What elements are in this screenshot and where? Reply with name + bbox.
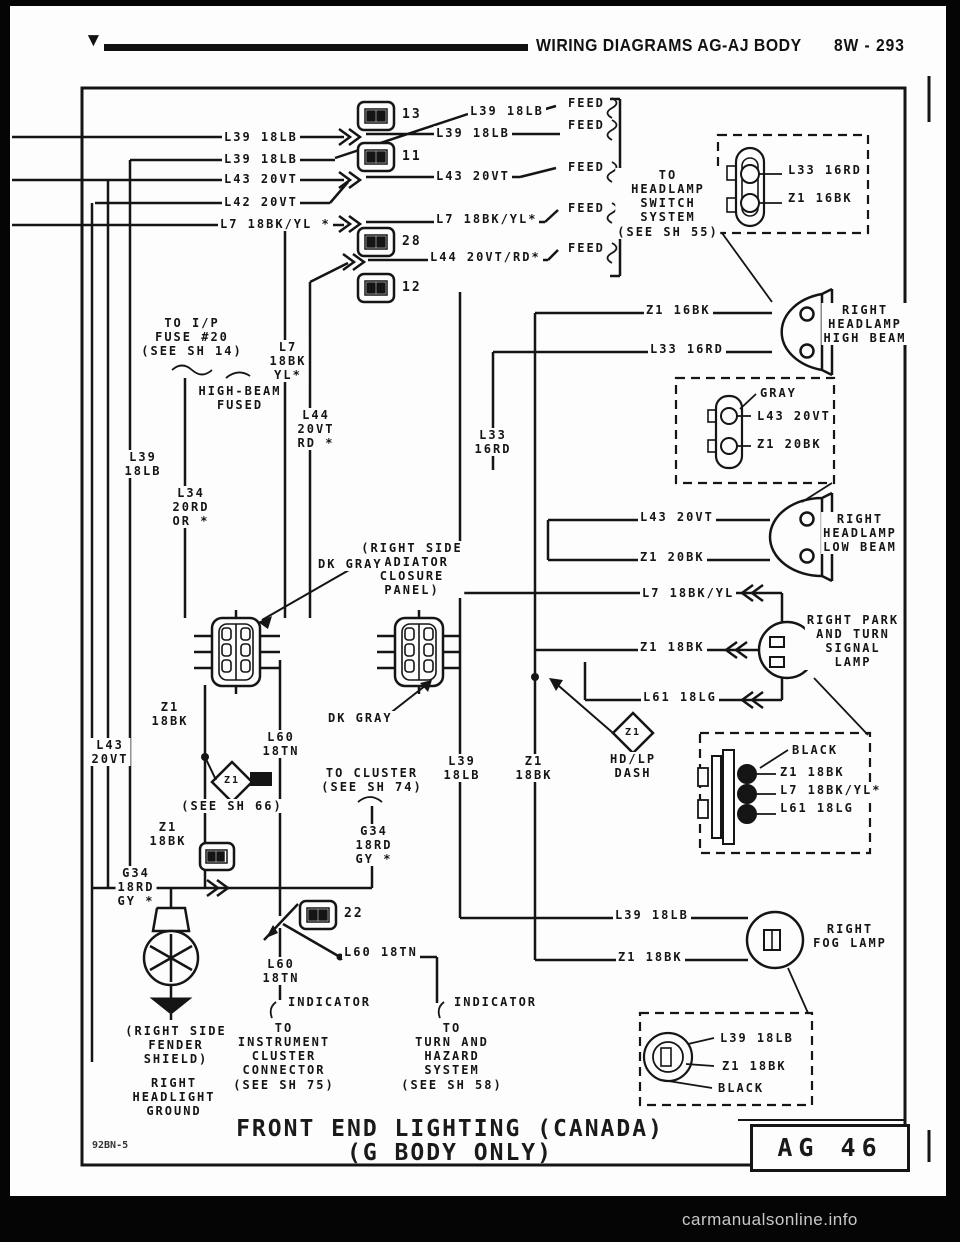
note-instrument-cluster: TO INSTRUMENT CLUSTER CONNECTOR (SEE SH … [231, 1021, 336, 1092]
note-ip-fuse: TO I/P FUSE #20 (SEE SH 14) [139, 316, 244, 358]
indicator-label-b: INDICATOR [452, 995, 539, 1009]
connector-color-gray: GRAY [758, 386, 799, 400]
wire-stack-l39-mid: L39 18LB [442, 754, 483, 782]
wire-label-l43-inset: L43 20VT [755, 409, 833, 423]
connector-color-black-b: BLACK [716, 1081, 766, 1095]
wire-stack-z1-left-b: Z1 18BK [148, 820, 189, 848]
wire-label-z1-20bk: Z1 20BK [638, 550, 707, 564]
wire-label-l7-b2: L7 18BK/YL [640, 586, 736, 600]
note-turn-hazard: TO TURN AND HAZARD SYSTEM (SEE SH 58) [399, 1021, 504, 1092]
wire-label-l33-inset: L33 16RD [786, 163, 864, 177]
page-reference-box: AG 46 [750, 1124, 910, 1172]
scanned-page: ▼ WIRING DIAGRAMS AG-AJ BODY 8W - 293 [0, 0, 960, 1242]
page-ref-box-line [738, 1119, 905, 1121]
wire-label-l60: L60 18TN [342, 945, 420, 959]
wire-label-l39-fog: L39 18LB [613, 908, 691, 922]
wire-stack-l39-left: L39 18LB [123, 450, 164, 478]
component-label-low-beam: RIGHT HEADLAMP LOW BEAM [821, 512, 899, 554]
note-cluster-sh74: TO CLUSTER (SEE SH 74) [319, 766, 424, 794]
connector-number-11: 11 [400, 149, 424, 164]
wire-label-l7-a: L7 18BK/YL * [218, 217, 333, 231]
wire-label-z1-inset: Z1 16BK [786, 191, 855, 205]
diagram-title-line1: FRONT END LIGHTING (CANADA) [236, 1116, 664, 1142]
wire-label-z1-inset2: Z1 18BK [778, 765, 847, 779]
wire-label-l7-inset2: L7 18BK/YL* [778, 783, 883, 797]
wire-label-z1-16bk: Z1 16BK [644, 303, 713, 317]
label-layer: L39 18LBL39 18LBL43 20VTL42 20VTL7 18BK/… [0, 0, 960, 1242]
connector-number-12: 12 [400, 280, 424, 295]
wire-stack-z1-mid: Z1 18BK [514, 754, 555, 782]
wire-label-l42-a: L42 20VT [222, 195, 300, 209]
note-fender-shield: (RIGHT SIDE FENDER SHIELD) [123, 1024, 228, 1066]
wire-label-z1-fog: Z1 18BK [616, 950, 685, 964]
connector-color-black-a: BLACK [790, 743, 840, 757]
note-high-beam-fused: HIGH-BEAM FUSED [196, 384, 283, 412]
note-headlight-ground: RIGHT HEADLIGHT GROUND [130, 1076, 217, 1118]
header-triangle-marker: ▼ [84, 30, 103, 52]
wire-label-l39-a: L39 18LB [222, 130, 300, 144]
splice-id-z1-b: Z1 [623, 727, 643, 739]
component-label-high-beam: RIGHT HEADLAMP HIGH BEAM [821, 303, 908, 345]
diagram-title-line2: (G BODY ONLY) [347, 1140, 553, 1166]
wire-label-l39-d: L39 18LB [434, 126, 512, 140]
connector-color-dk-gray-b: DK GRAY [326, 711, 395, 725]
feed-label-3: FEED [566, 160, 607, 174]
wire-label-l43-c: L43 20VT [638, 510, 716, 524]
wire-label-l43-a: L43 20VT [222, 172, 300, 186]
note-see-sh66: (SEE SH 66) [179, 799, 284, 813]
component-label-park-turn: RIGHT PARK AND TURN SIGNAL LAMP [805, 613, 901, 670]
note-headlamp-switch: TO HEADLAMP SWITCH SYSTEM (SEE SH 55) [615, 168, 720, 239]
watermark-text: carmanualsonline.info [682, 1210, 858, 1230]
wire-label-l44-a: L44 20VT/RD* [428, 250, 543, 264]
connector-color-dk-gray-a: DK GRAY [316, 557, 385, 571]
splice-id-z1-a: Z1 [222, 775, 242, 787]
wire-label-l43-b: L43 20VT [434, 169, 512, 183]
indicator-label-a: INDICATOR [286, 995, 373, 1009]
component-label-fog: RIGHT FOG LAMP [811, 922, 889, 950]
wire-label-l33-16rd: L33 16RD [648, 342, 726, 356]
feed-label-2: FEED [566, 118, 607, 132]
wire-stack-l60-a: L60 18TN [261, 730, 302, 758]
connector-number-13: 13 [400, 107, 424, 122]
wire-stack-l7: L7 18BK YL* [268, 340, 309, 382]
wire-stack-l60-b: L60 18TN [261, 957, 302, 985]
feed-label-1: FEED [566, 96, 607, 110]
wire-stack-g34-b: G34 18RD GY * [116, 866, 157, 908]
header-page-code: 8W - 293 [834, 36, 905, 57]
feed-label-5: FEED [566, 241, 607, 255]
wire-stack-l43-left: L43 20VT [90, 738, 131, 766]
wire-stack-z1-left-a: Z1 18BK [150, 700, 191, 728]
wire-label-z1-18bk-a: Z1 18BK [638, 640, 707, 654]
connector-number-28: 28 [400, 234, 424, 249]
wire-label-l7-b: L7 18BK/YL* [434, 212, 539, 226]
wire-label-z1-20bk-inset: Z1 20BK [755, 437, 824, 451]
wire-stack-l44: L44 20VT RD * [296, 408, 337, 450]
header-rule [104, 44, 528, 51]
document-code: 92BN-5 [92, 1140, 128, 1151]
wire-label-z1-inset3: Z1 18BK [720, 1059, 789, 1073]
header-title: WIRING DIAGRAMS AG-AJ BODY [536, 36, 802, 57]
wire-stack-g34-a: G34 18RD GY * [354, 824, 395, 866]
wire-label-l39-inset3: L39 18LB [718, 1031, 796, 1045]
wire-label-l61: L61 18LG [641, 690, 719, 704]
wire-label-l39-b: L39 18LB [222, 152, 300, 166]
wire-stack-l34: L34 20RD OR * [171, 486, 212, 528]
wire-label-l39-c: L39 18LB [468, 104, 546, 118]
wire-label-l61-inset2: L61 18LG [778, 801, 856, 815]
wire-stack-l33: L33 16RD [473, 428, 514, 456]
splice-label-hdlp: HD/LP DASH [608, 752, 658, 780]
feed-label-4: FEED [566, 201, 607, 215]
connector-number-22: 22 [342, 906, 366, 921]
